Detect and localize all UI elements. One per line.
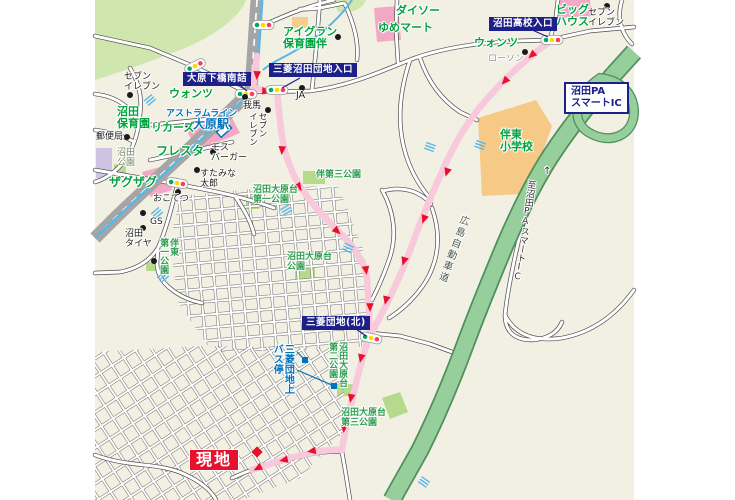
intersection-box-mitsubishi-numata-entrance: 三菱沼田団地入口 — [269, 63, 357, 77]
site-location-badge: 現地 — [189, 449, 239, 471]
traffic-light — [252, 21, 274, 30]
intersection-box-ohara-shimobashi: 大原下橋南詰 — [183, 72, 251, 86]
smart-ic-box-numata-pa: 沼田PA スマートIC — [564, 82, 629, 114]
traffic-light — [541, 36, 563, 45]
map-graphics — [0, 0, 735, 500]
map-canvas: セブン イレブン ウォンツ 沼田 保育園 アストラムライン 大原駅 リカーズ 郵… — [0, 0, 735, 500]
intersection-box-numata-highschool-entrance: 沼田高校入口 — [489, 17, 557, 31]
intersection-box-mitsubishi-danchi-north: 三菱団地(北) — [302, 316, 370, 330]
park-ban3 — [303, 171, 325, 184]
